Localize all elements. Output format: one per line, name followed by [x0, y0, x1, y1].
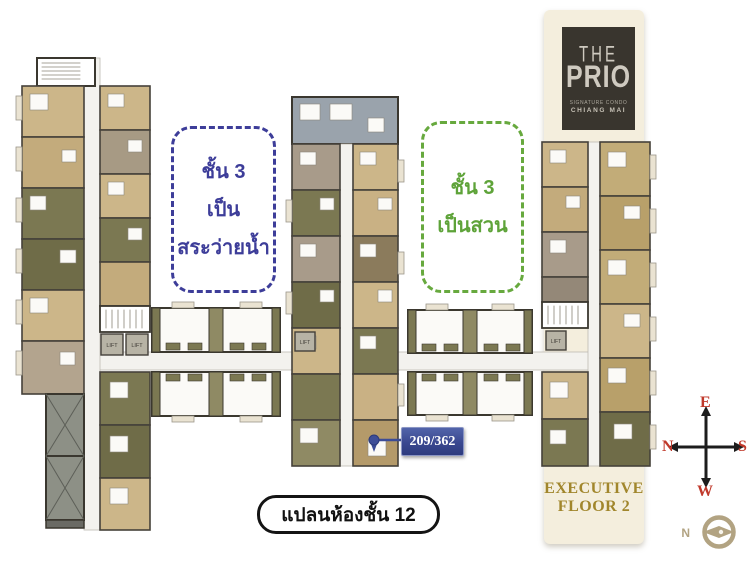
- lift-label: LIFT: [300, 340, 310, 346]
- lift-boxes: LIFT: [546, 331, 566, 350]
- compass-north-label: N: [662, 438, 674, 456]
- pool-note-line3: สระว่ายน้ำ: [177, 229, 270, 267]
- logo-city: CHIANG MAI: [571, 107, 626, 114]
- garden-note-line1: ชั้น 3: [451, 169, 495, 207]
- page: LIFT LIFT: [0, 0, 750, 566]
- lift-label: LIFT: [131, 343, 143, 349]
- the-prio-logo: THE PRIO SIGNATURE CONDO CHIANG MAI: [562, 27, 635, 130]
- stairs: [100, 306, 150, 332]
- compass-west-label: W: [697, 483, 713, 501]
- garden-note-line2: เป็นสวน: [437, 207, 507, 245]
- north-compass-icon: N: [681, 518, 734, 547]
- horizontal-wing-lower-right: [408, 372, 532, 421]
- horizontal-wing-upper-left: [152, 302, 280, 352]
- floor-caption-text: แปลนห้องชั้น 12: [281, 500, 415, 530]
- floor-caption-pill: แปลนห้องชั้น 12: [257, 495, 440, 534]
- horizontal-wing-lower-left: [152, 372, 280, 422]
- lift-boxes: LIFT: [295, 332, 315, 351]
- unit-number-text: 209/362: [410, 434, 456, 450]
- pool-note-line1: ชั้น 3: [202, 153, 246, 191]
- void-area: [46, 394, 84, 528]
- compass-south-label: S: [738, 438, 747, 456]
- logo-prio: PRIO: [566, 58, 631, 97]
- lift-label: LIFT: [551, 339, 561, 345]
- compass-rose: [668, 406, 744, 488]
- north-label: N: [681, 526, 690, 540]
- right-wing: [542, 142, 656, 466]
- pool-note-box: ชั้น 3 เป็น สระว่ายน้ำ: [171, 126, 276, 293]
- executive-floor-label: EXECUTIVE FLOOR 2: [544, 480, 644, 515]
- lift-label: LIFT: [106, 343, 118, 349]
- stairs: [37, 58, 95, 86]
- middle-wing: [286, 97, 404, 466]
- garden-note-box: ชั้น 3 เป็นสวน: [421, 121, 524, 293]
- stairs: [542, 302, 588, 328]
- unit-number-label[interactable]: 209/362: [401, 427, 464, 456]
- logo-subtitle: SIGNATURE CONDO: [570, 100, 628, 106]
- executive-line1: EXECUTIVE: [544, 480, 644, 498]
- compass-east-label: E: [700, 394, 711, 412]
- pool-note-line2: เป็น: [207, 191, 240, 229]
- left-wing: [16, 58, 150, 530]
- horizontal-wing-upper-right: [408, 304, 532, 353]
- executive-line2: FLOOR 2: [544, 498, 644, 516]
